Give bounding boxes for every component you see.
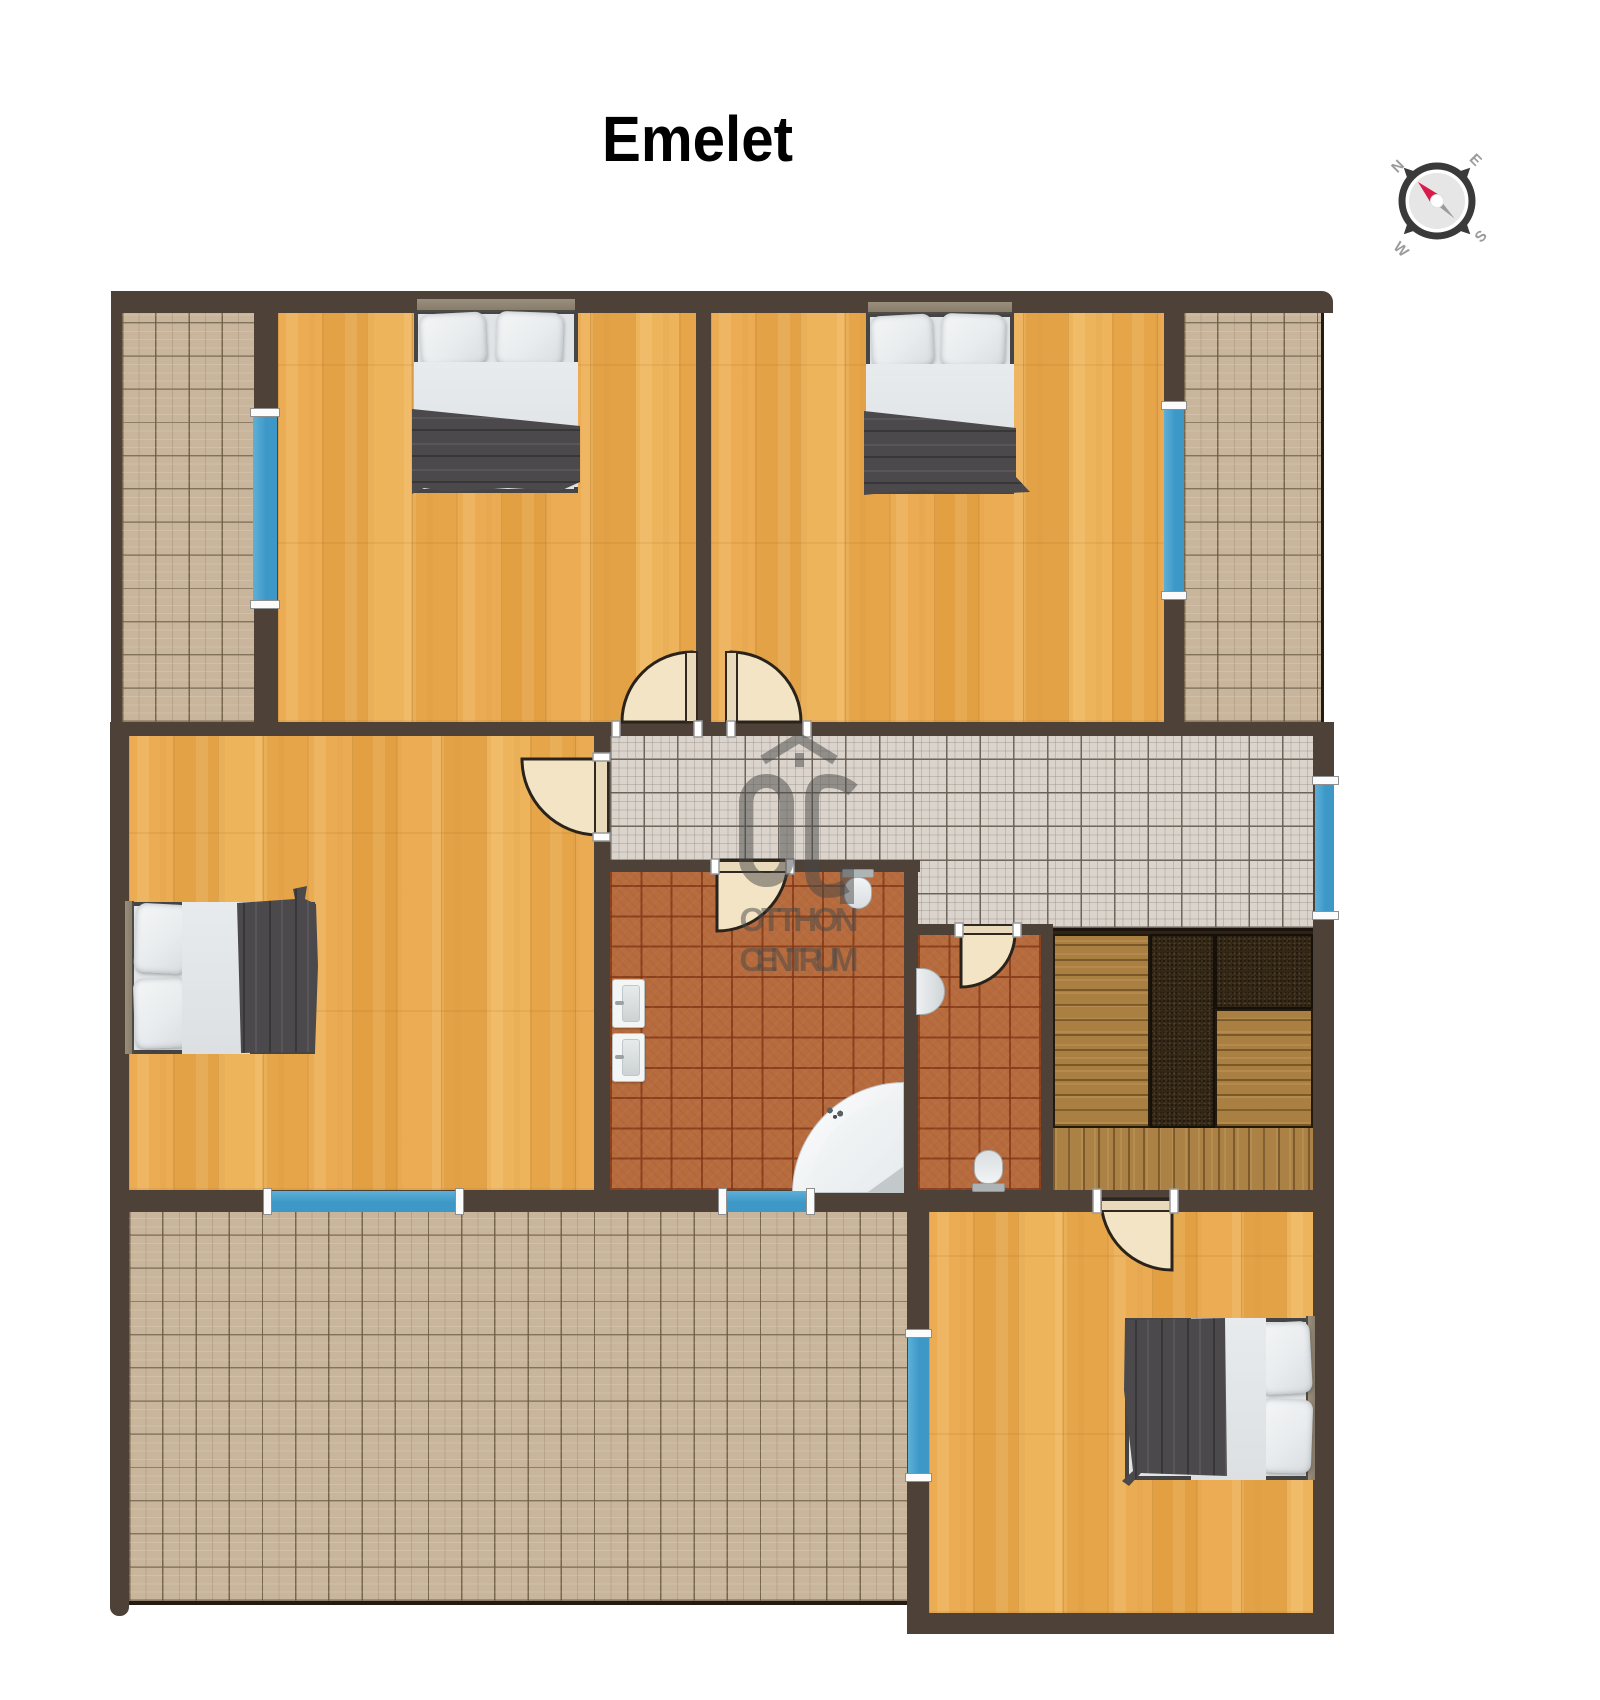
svg-text:OTTHON: OTTHON bbox=[740, 901, 859, 938]
svg-text:E: E bbox=[1466, 151, 1485, 170]
svg-text:S: S bbox=[1472, 227, 1491, 246]
svg-text:N: N bbox=[1388, 157, 1408, 177]
svg-text:CENTRUM: CENTRUM bbox=[740, 941, 859, 978]
svg-text:W: W bbox=[1390, 239, 1413, 256]
